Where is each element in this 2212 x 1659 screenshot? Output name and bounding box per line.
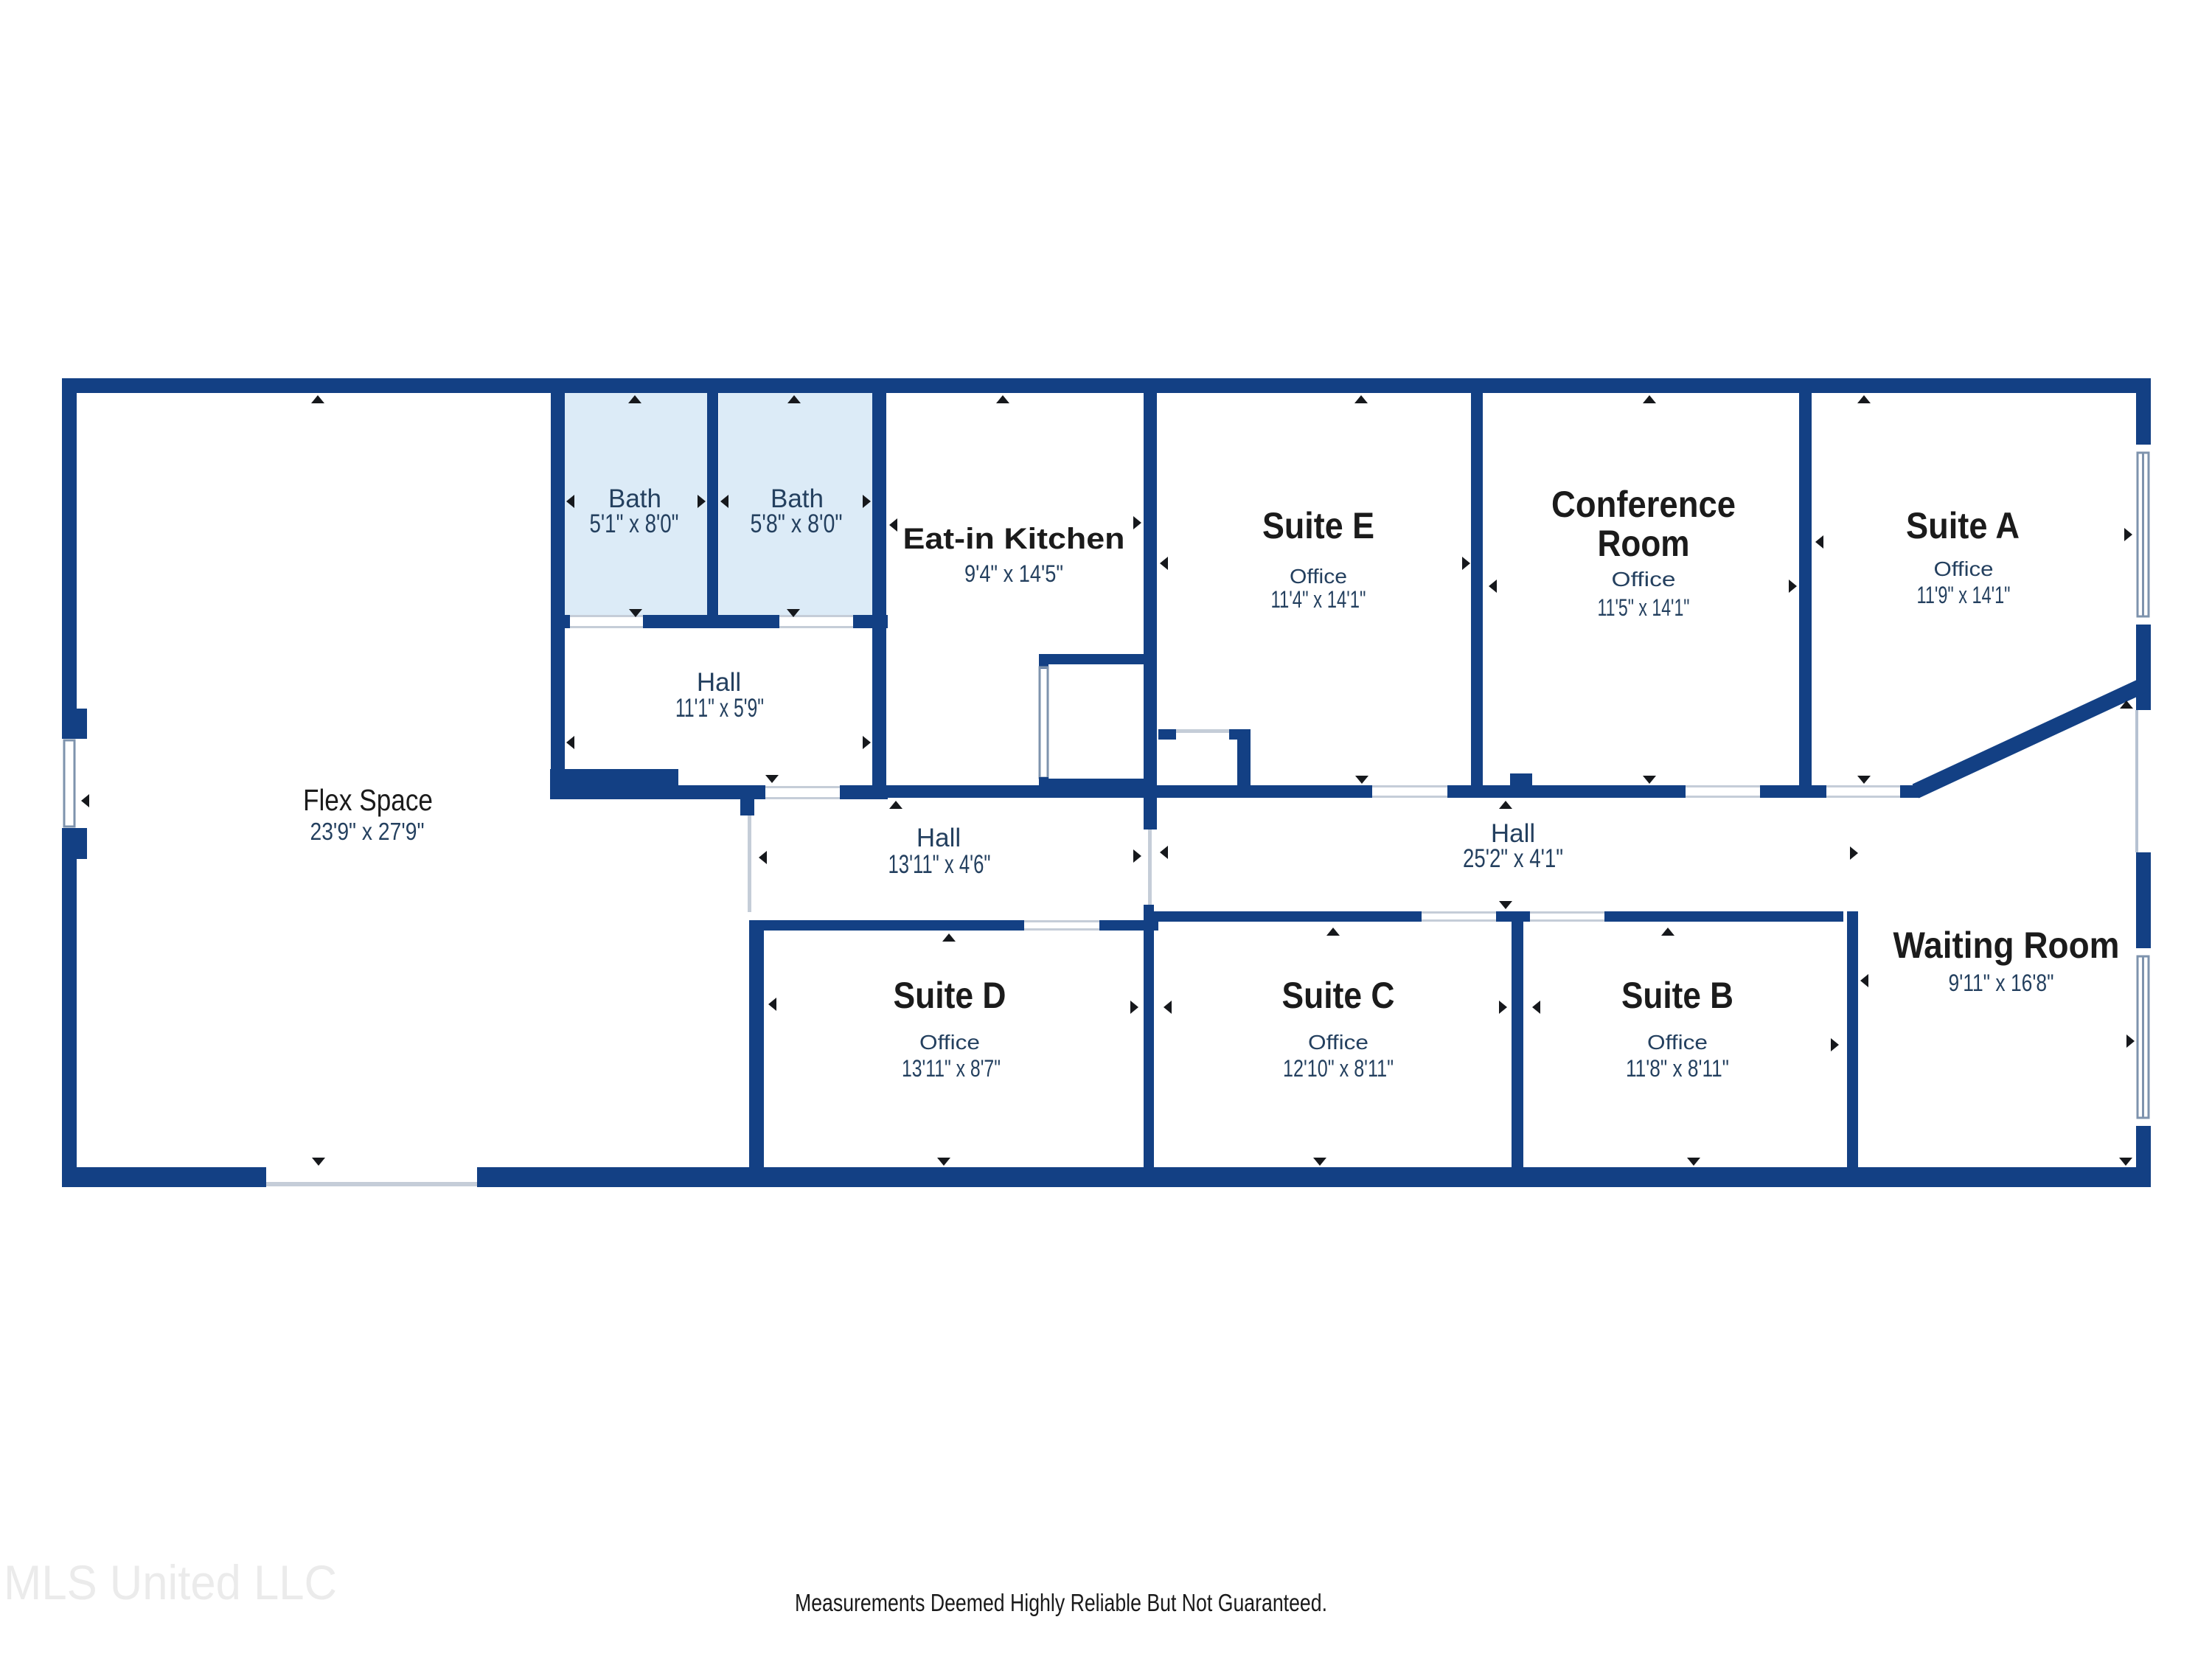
svg-text:11'8" x 8'11": 11'8" x 8'11" (1626, 1055, 1729, 1082)
svg-text:5'8" x 8'0": 5'8" x 8'0" (751, 509, 843, 538)
svg-text:9'4" x 14'5": 9'4" x 14'5" (964, 560, 1063, 587)
svg-text:Office: Office (1612, 568, 1676, 591)
svg-text:5'1" x 8'0": 5'1" x 8'0" (590, 509, 679, 538)
svg-text:Room: Room (1598, 523, 1690, 564)
svg-text:Hall: Hall (697, 668, 741, 697)
svg-text:Office: Office (919, 1031, 980, 1054)
svg-text:12'10" x 8'11": 12'10" x 8'11" (1283, 1055, 1394, 1082)
svg-text:23'9" x 27'9": 23'9" x 27'9" (310, 818, 425, 845)
svg-text:Office: Office (1290, 565, 1347, 588)
svg-text:Suite B: Suite B (1621, 975, 1733, 1016)
svg-text:MLS United LLC: MLS United LLC (4, 1555, 337, 1610)
svg-text:Conference: Conference (1551, 484, 1736, 525)
svg-text:Measurements Deemed Highly Rel: Measurements Deemed Highly Reliable But … (795, 1589, 1327, 1616)
svg-text:Office: Office (1934, 557, 1994, 580)
svg-text:Suite E: Suite E (1262, 505, 1374, 546)
svg-text:Eat-in Kitchen: Eat-in Kitchen (903, 523, 1125, 555)
svg-text:Waiting Room: Waiting Room (1893, 925, 2120, 966)
svg-text:13'11" x 8'7": 13'11" x 8'7" (902, 1055, 1001, 1082)
svg-text:Hall: Hall (917, 824, 961, 852)
svg-text:11'1" x 5'9": 11'1" x 5'9" (675, 694, 764, 723)
svg-text:Office: Office (1308, 1031, 1368, 1054)
svg-text:25'2" x 4'1": 25'2" x 4'1" (1463, 844, 1563, 873)
svg-text:Office: Office (1647, 1031, 1708, 1054)
svg-text:11'9" x 14'1": 11'9" x 14'1" (1917, 582, 2011, 608)
svg-text:Suite D: Suite D (894, 975, 1006, 1016)
svg-text:11'4" x 14'1": 11'4" x 14'1" (1271, 586, 1366, 613)
svg-text:13'11" x 4'6": 13'11" x 4'6" (888, 850, 991, 879)
svg-text:Suite C: Suite C (1282, 975, 1395, 1016)
svg-text:11'5" x 14'1": 11'5" x 14'1" (1598, 594, 1690, 621)
svg-text:9'11" x 16'8": 9'11" x 16'8" (1949, 970, 2054, 996)
svg-text:Flex Space: Flex Space (303, 783, 433, 817)
svg-text:Suite A: Suite A (1906, 505, 2020, 546)
